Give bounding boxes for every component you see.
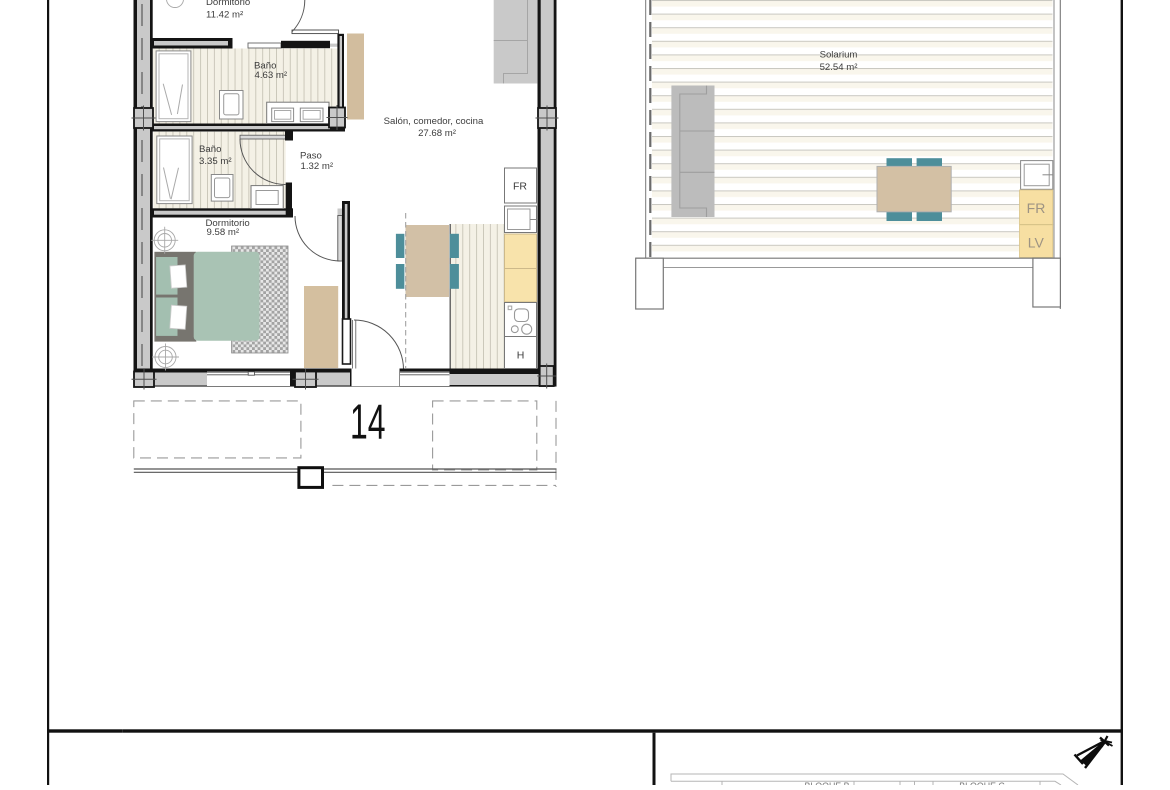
svg-text:Solarium: Solarium bbox=[820, 50, 858, 61]
svg-text:14: 14 bbox=[350, 395, 386, 450]
svg-text:11.42 m²: 11.42 m² bbox=[206, 10, 244, 21]
svg-text:Dormitorio: Dormitorio bbox=[206, 0, 250, 8]
svg-text:Salón, comedor, cocina: Salón, comedor, cocina bbox=[384, 116, 484, 127]
svg-text:Baño: Baño bbox=[199, 144, 221, 155]
svg-text:27.68 m²: 27.68 m² bbox=[418, 128, 457, 139]
svg-text:LV: LV bbox=[1028, 235, 1045, 251]
svg-text:BLOQUE C: BLOQUE C bbox=[959, 781, 1005, 785]
svg-text:1.32 m²: 1.32 m² bbox=[301, 161, 334, 172]
svg-text:52.54 m²: 52.54 m² bbox=[820, 62, 859, 73]
svg-text:9.58 m²: 9.58 m² bbox=[207, 227, 240, 238]
svg-text:4.63 m²: 4.63 m² bbox=[255, 70, 288, 81]
svg-text:3.35 m²: 3.35 m² bbox=[199, 156, 232, 167]
svg-text:FR: FR bbox=[1027, 200, 1046, 216]
svg-text:H: H bbox=[517, 350, 525, 362]
svg-text:BLOQUE B: BLOQUE B bbox=[805, 781, 850, 785]
svg-text:FR: FR bbox=[513, 181, 527, 193]
svg-text:Paso: Paso bbox=[300, 150, 322, 161]
